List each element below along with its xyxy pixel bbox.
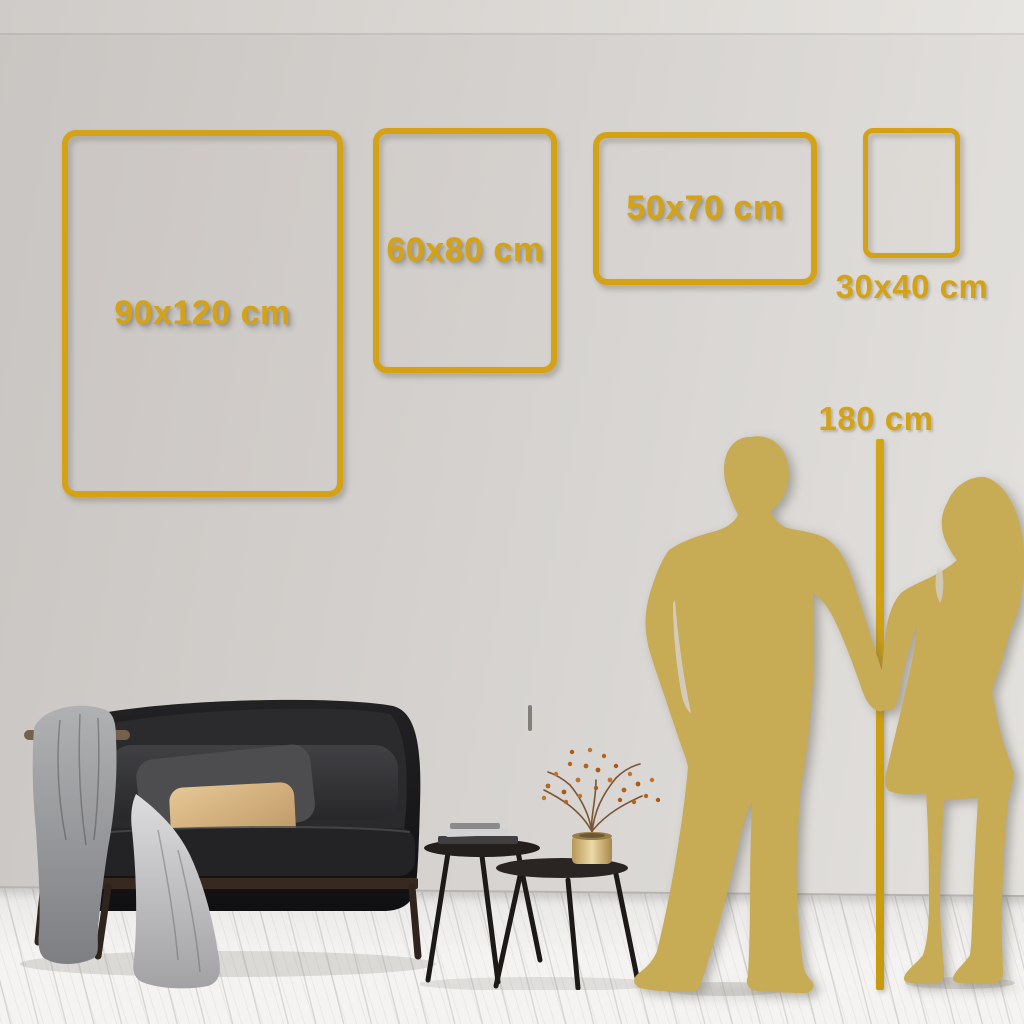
wall-nail-mark bbox=[528, 705, 532, 731]
ceiling-line bbox=[0, 33, 1024, 35]
frame-30x40 bbox=[863, 128, 960, 258]
frame-90x120: 90x120 cm bbox=[62, 130, 343, 497]
frame-90x120-label: 90x120 cm bbox=[114, 294, 291, 333]
frame-60x80-label: 60x80 cm bbox=[386, 231, 543, 270]
sofa-illustration bbox=[8, 690, 438, 1010]
couple-silhouette bbox=[620, 425, 1024, 1010]
frame-50x70: 50x70 cm bbox=[593, 132, 817, 285]
books-stack bbox=[438, 823, 518, 844]
sofa-wood-rail bbox=[66, 878, 418, 889]
gold-vase bbox=[572, 832, 612, 864]
frame-60x80: 60x80 cm bbox=[373, 128, 557, 373]
sofa-seat-cushion bbox=[70, 828, 415, 876]
low-table-legs bbox=[496, 874, 638, 988]
ceiling-strip bbox=[0, 0, 1024, 33]
woman-silhouette bbox=[880, 477, 1024, 984]
size-guide-scene: 90x120 cm 60x80 cm 50x70 cm 30x40 cm bbox=[0, 0, 1024, 1024]
frame-50x70-label: 50x70 cm bbox=[626, 189, 783, 228]
man-silhouette bbox=[634, 436, 888, 993]
frame-30x40-label: 30x40 cm bbox=[822, 268, 1002, 306]
height-reference-label: 180 cm bbox=[776, 400, 976, 438]
